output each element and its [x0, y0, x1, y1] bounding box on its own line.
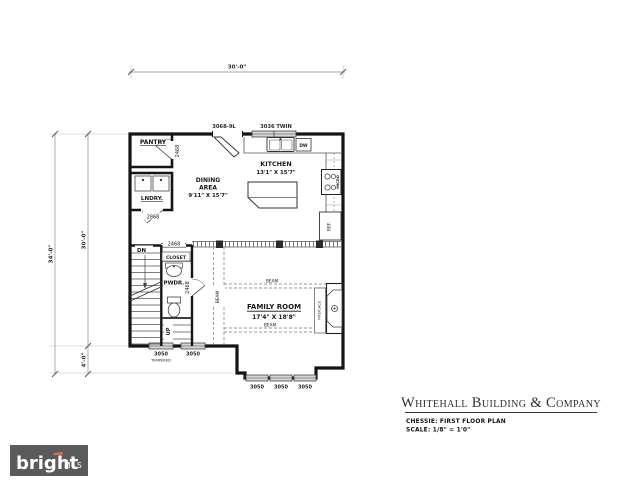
toilet-bowl-symbol	[168, 303, 180, 317]
closet-label: CLOSET	[166, 255, 187, 261]
floor-plan-canvas: 30'-0" 34'-0" 30'-0" 4'-0"	[0, 0, 621, 480]
toilet-tank-symbol	[168, 297, 181, 303]
bright-mls-logo: bright MLS	[10, 445, 88, 476]
window-bay-trio	[246, 375, 316, 381]
stairs-dn-label: DN	[137, 248, 146, 254]
floor-plan-page: 30'-0" 34'-0" 30'-0" 4'-0"	[0, 0, 621, 480]
door-3068-leaf	[214, 137, 239, 157]
title-block: Whitehall Building & Company CHESSIE: FI…	[401, 395, 601, 434]
dim-left-upper-label: 30'-0"	[82, 231, 88, 250]
powder-room: PWDR. 2468	[164, 263, 205, 317]
kitchen-island	[248, 182, 297, 208]
range-micro-symbol: MICRO	[322, 170, 342, 195]
dishwasher-symbol: DW	[296, 139, 311, 152]
window-left-a-label: 3050	[154, 352, 168, 358]
pantry-door-size: 2468	[175, 145, 181, 158]
kitchen-label: KITCHEN	[260, 160, 291, 168]
powder-door-size: 2468	[185, 281, 191, 294]
beam-lower-label: BEAM	[264, 323, 277, 329]
beam-band	[192, 241, 341, 249]
dryer-symbol	[153, 176, 169, 191]
dining-label-line2: AREA	[199, 185, 217, 192]
plan-scale: SCALE: 1/8" = 1'0"	[406, 428, 470, 434]
fridge-label: REF.	[327, 222, 333, 231]
logo-mls-text: MLS	[64, 461, 83, 470]
company-name: Whitehall Building & Company	[401, 395, 601, 411]
plan-title: CHESSIE: FIRST FLOOR PLAN	[406, 419, 506, 425]
dishwasher-label: DW	[299, 143, 308, 149]
window-left-b-label: 3050	[186, 352, 200, 358]
beam-left-label: BEAM	[215, 291, 221, 304]
dining-size-label: 9'11" X 15'7"	[188, 193, 228, 199]
fireplace-symbol: FIREPLACE	[315, 284, 343, 334]
window-bay-c-label: 3050	[298, 385, 312, 391]
closet-door-size: 2468	[168, 242, 181, 248]
kitchen-size-label: 13'1" X 15'7"	[256, 170, 296, 176]
family-room-size-label: 17'4" X 18'8"	[252, 314, 296, 321]
dim-left-total-label: 34'-0"	[49, 245, 55, 264]
dim-top-width-label: 30'-0"	[228, 65, 247, 71]
dim-left-lower-label: 4'-0"	[82, 353, 88, 368]
stairs-up-label: UP	[166, 327, 172, 335]
window-bay-b-label: 3050	[274, 385, 288, 391]
stairs-dn-arrow	[143, 283, 147, 289]
dimension-top-width: 30'-0"	[128, 65, 346, 80]
fridge-symbol: REF.	[320, 212, 342, 240]
door-3068-label: 3068-9L	[212, 124, 236, 130]
sink-symbol	[267, 138, 294, 152]
washer-symbol	[135, 176, 151, 191]
window-3036-twin	[252, 131, 296, 137]
powder-label: PWDR.	[164, 281, 185, 287]
beam-upper-label: BEAM	[266, 279, 279, 285]
micro-label: MICRO	[336, 175, 340, 189]
dining-label-line1: DINING	[196, 177, 220, 184]
window-3036-label: 3036 TWIN	[260, 124, 292, 130]
family-room-label: FAMILY ROOM	[247, 303, 301, 311]
laundry-label: LNDRY.	[141, 196, 163, 202]
fireplace-label: FIREPLACE	[318, 301, 322, 320]
closet: 2468 CLOSET	[162, 240, 190, 262]
tempered-label: TEMPERED	[150, 359, 171, 363]
door-3068	[213, 130, 243, 157]
window-bay-a-label: 3050	[250, 385, 264, 391]
pantry-label: PANTRY	[140, 139, 167, 146]
laundry-door-size: 2868	[147, 215, 160, 221]
